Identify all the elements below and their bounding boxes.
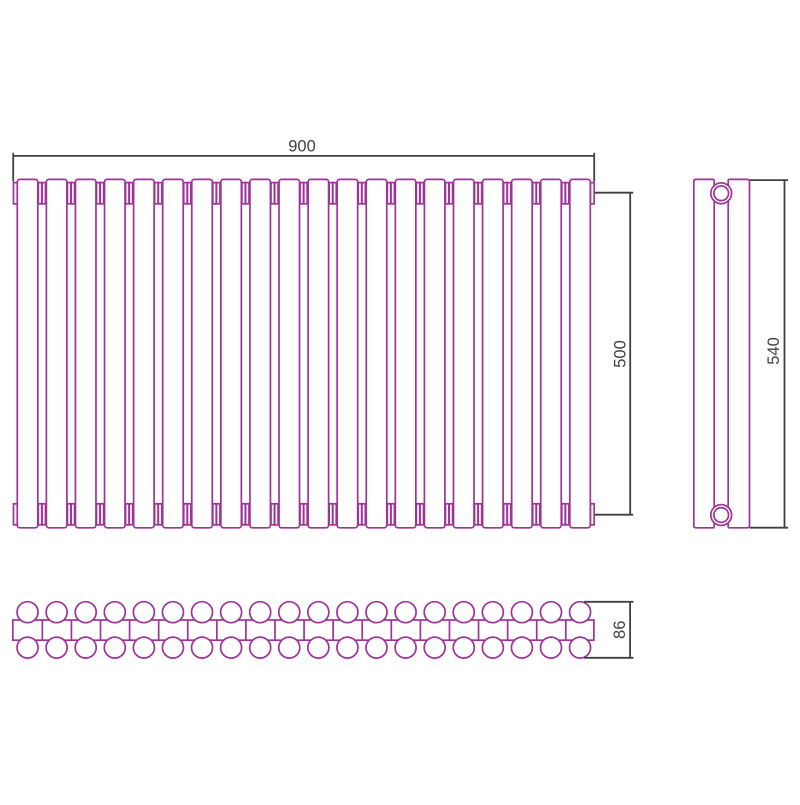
svg-text:540: 540 <box>765 337 783 365</box>
svg-text:500: 500 <box>612 340 630 368</box>
svg-text:900: 900 <box>288 138 316 156</box>
svg-text:86: 86 <box>611 621 629 639</box>
